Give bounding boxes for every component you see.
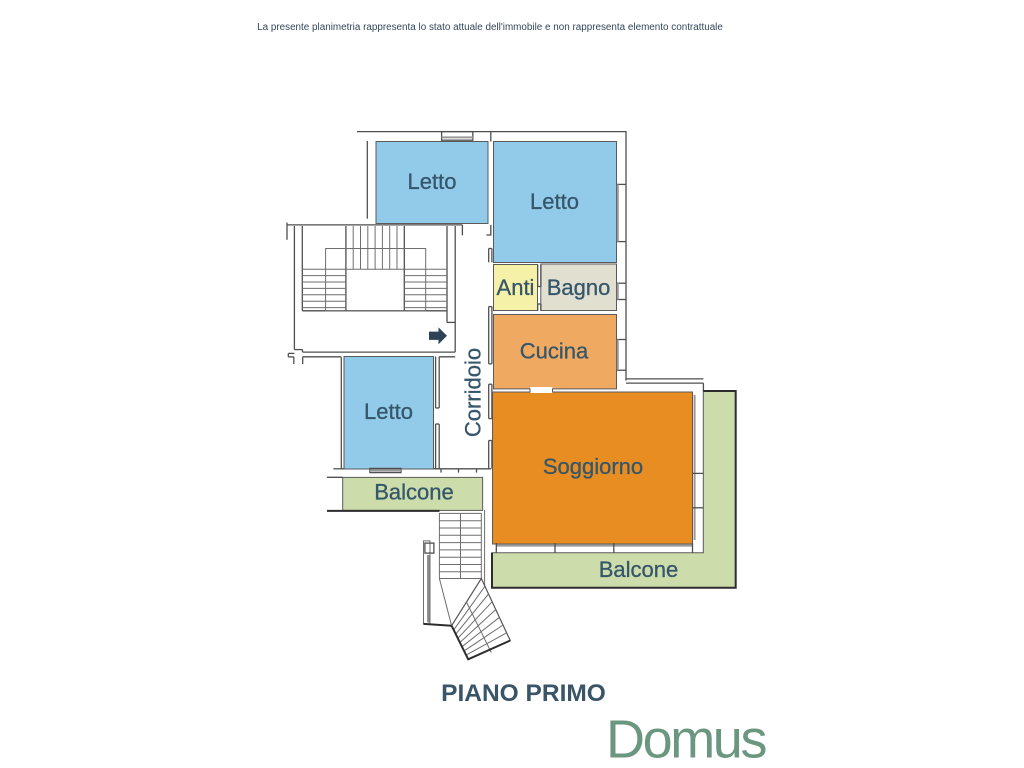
- svg-text:Letto: Letto: [408, 169, 457, 194]
- svg-text:Soggiorno: Soggiorno: [543, 454, 643, 479]
- svg-text:Balcone: Balcone: [599, 557, 679, 582]
- svg-text:Anti: Anti: [497, 275, 535, 300]
- svg-text:Corridoio: Corridoio: [461, 348, 486, 437]
- svg-text:Cucina: Cucina: [520, 339, 589, 364]
- svg-text:Bagno: Bagno: [547, 275, 611, 300]
- svg-text:Letto: Letto: [364, 399, 413, 424]
- svg-text:Balcone: Balcone: [374, 480, 454, 505]
- svg-text:PIANO PRIMO: PIANO PRIMO: [441, 680, 606, 707]
- svg-text:La presente planimetria rappre: La presente planimetria rappresenta lo s…: [257, 22, 723, 33]
- svg-text:Letto: Letto: [530, 189, 579, 214]
- svg-text:Domus: Domus: [606, 710, 766, 768]
